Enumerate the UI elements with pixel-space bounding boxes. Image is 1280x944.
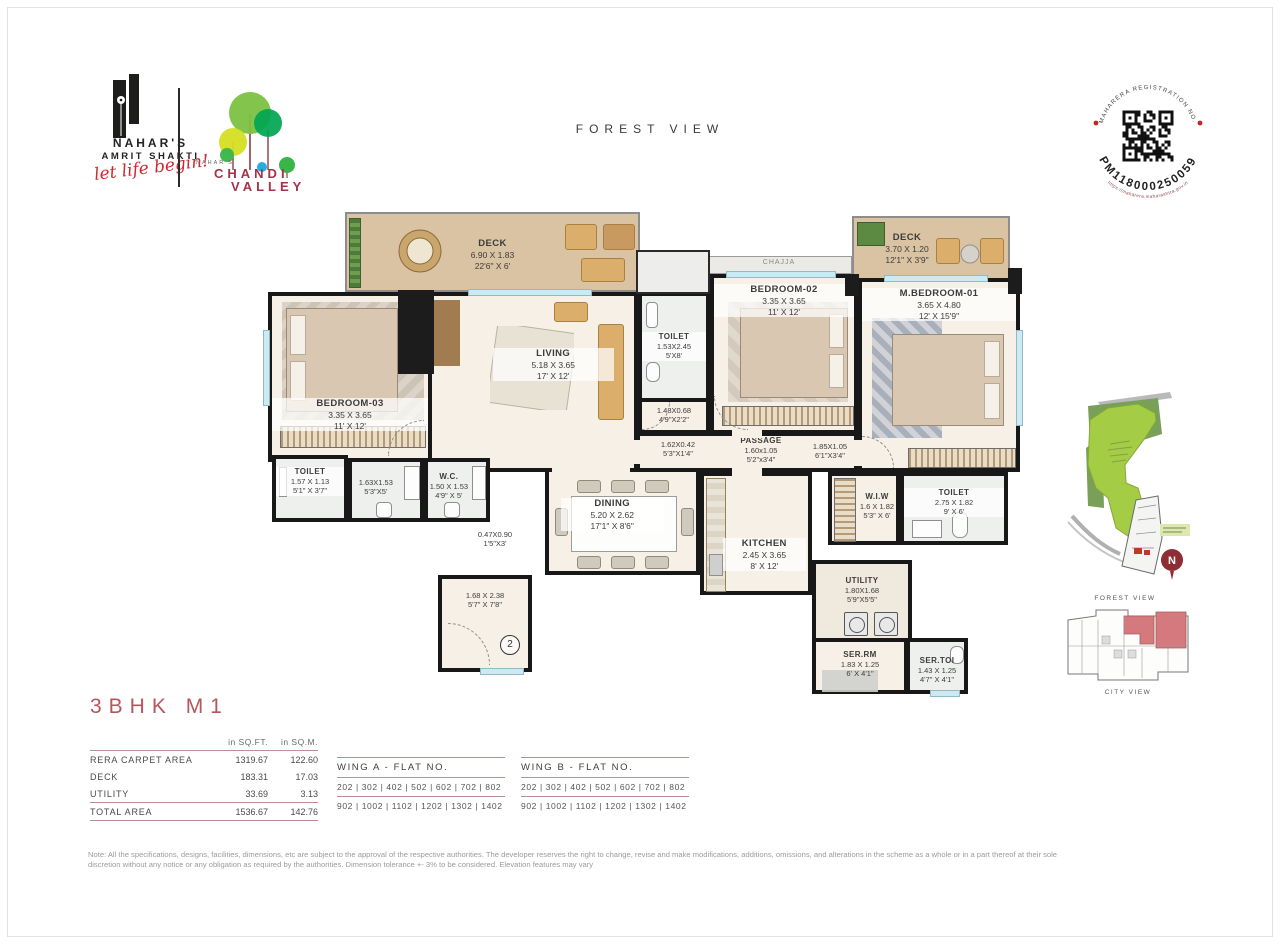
deck-sofa-icon (581, 258, 625, 282)
keyplan-caption-bottom: CITY VIEW (1105, 689, 1152, 696)
site-map: N FOREST VIEW (1058, 388, 1198, 606)
area-table: in SQ.FT. in SQ.M. RERA CARPET AREA 1319… (90, 733, 318, 821)
shower-icon (472, 466, 486, 500)
shower-icon (404, 466, 420, 500)
wall-opening (634, 440, 642, 464)
window (1016, 330, 1023, 426)
table-total-row: TOTAL AREA 1536.67 142.76 (90, 803, 318, 820)
wing-b-title: WING B - FLAT NO. (521, 758, 689, 777)
room-toilet-master: TOILET 2.75 X 1.82 9' X 6' (900, 472, 1008, 545)
room-label: 1.68 X 2.38 5'7" X 7'8" (442, 591, 528, 610)
brochure-page: { "brand": { "name_line1": "NAHAR'S", "n… (0, 0, 1280, 944)
deck-table-icon (603, 224, 635, 250)
area-table-header: in SQ.FT. in SQ.M. (90, 733, 318, 750)
rera-label: MAHARERA REGISTRATION NO. (1099, 85, 1197, 124)
window (468, 289, 592, 296)
highlighted-unit (1156, 612, 1186, 648)
col-sqm: in SQ.M. (268, 737, 318, 747)
room-bath: 1.63X1.53 5'3"X5' (348, 458, 424, 522)
room-wc: W.C. 1.50 X 1.53 4'9" X 5' (424, 458, 490, 522)
wing-a-flats-1: 202 | 302 | 402 | 502 | 602 | 702 | 802 (337, 778, 505, 796)
wc-icon (444, 502, 460, 518)
shower-icon (279, 467, 287, 497)
forest-view-title: FOREST VIEW (540, 122, 760, 136)
room-label: PASSAGE 1.60x1.05 5'2"x3'4" (718, 436, 804, 465)
bed-icon (740, 308, 848, 398)
window (480, 668, 524, 675)
disclaimer-line-2: discretion without any notice or any obl… (88, 860, 593, 869)
wc-icon (950, 646, 964, 664)
room-toilet-middle: TOILET 1.53X2.45 5'X8' (638, 292, 710, 402)
room-label: W.I.W 1.6 X 1.82 5'3" X 6' (854, 492, 900, 521)
maharera-qr-stamp: MAHARERA REGISTRATION NO. PM118000250059… (1078, 66, 1218, 206)
room-label: TOILET 1.53X2.45 5'X8' (642, 332, 706, 361)
room-service-room: SER.RM 1.83 X 1.25 6' X 4'1" (812, 638, 908, 694)
wing-b-flats-1: 202 | 302 | 402 | 502 | 602 | 702 | 802 (521, 778, 689, 796)
road (1072, 516, 1120, 554)
wing-a-title: WING A - FLAT NO. (337, 758, 505, 777)
armchair-icon (554, 302, 588, 322)
room-label: M.BEDROOM-01 3.65 X 4.80 12' X 15'9" (862, 288, 1016, 321)
wing-a-block: WING A - FLAT NO. 202 | 302 | 402 | 502 … (337, 757, 505, 815)
bed-icon (286, 308, 398, 412)
wardrobe-icon (834, 478, 856, 542)
living-rug-icon (490, 326, 574, 410)
table-row: DECK 183.31 17.03 (90, 768, 318, 785)
room-entrance-foyer: 1.68 X 2.38 5'7" X 7'8" 2 (438, 575, 532, 672)
unit-title: 3BHK M1 (90, 695, 229, 719)
qr-code-icon (1123, 111, 1174, 162)
svg-text:MAHARERA REGISTRATION NO.: MAHARERA REGISTRATION NO. (1099, 85, 1197, 124)
deck-table-icon (960, 244, 980, 264)
deck-sofa-icon (565, 224, 597, 250)
room-deck-1: DECK 6.90 X 1.83 22'6" X 6' (345, 212, 640, 292)
window (726, 271, 836, 278)
sink-icon (709, 554, 723, 576)
niche-label: 0.47X0.90 1'5"X3' (455, 530, 535, 549)
niche-label: 1.85X1.05 6'1"X3'4" (798, 442, 862, 461)
wc-icon (952, 512, 968, 538)
washer-icon (874, 612, 898, 636)
col-sqft: in SQ.FT. (212, 737, 268, 747)
room-kitchen: KITCHEN 2.45 X 3.65 8' X 12' (700, 472, 812, 595)
sitemap-caption-top: FOREST VIEW (1094, 595, 1155, 602)
room-wiw: W.I.W 1.6 X 1.82 5'3" X 6' (828, 472, 900, 545)
room-dining: DINING 5.20 X 2.62 17'1" X 8'6" (545, 468, 700, 575)
column (1008, 268, 1022, 294)
shaft (636, 250, 710, 294)
window (263, 330, 270, 406)
room-utility: UTILITY 1.80X1.68 5'9"X5'5" (812, 560, 912, 642)
deck-chair-icon (980, 238, 1004, 264)
washer-icon (844, 612, 868, 636)
disclaimer-line-1: Note: All the specifications, designs, f… (88, 850, 1057, 859)
wing-b-block: WING B - FLAT NO. 202 | 302 | 402 | 502 … (521, 757, 689, 815)
wall-opening (552, 466, 630, 476)
room-label: KITCHEN 2.45 X 3.65 8' X 12' (723, 538, 806, 571)
room-label: UTILITY 1.80X1.68 5'9"X5'5" (816, 576, 908, 605)
highlight-building (1134, 548, 1142, 554)
service-bed-icon (822, 670, 878, 692)
table-row: RERA CARPET AREA 1319.67 122.60 (90, 751, 318, 768)
wardrobe-icon (908, 448, 1016, 468)
niche-label: 1.62X0.42 5'3"X1'4" (642, 440, 714, 459)
column (398, 290, 434, 374)
table-row: UTILITY 33.69 3.13 (90, 785, 318, 802)
sofa-icon (598, 324, 624, 420)
room-service-toilet: SER.TOI 1.43 X 1.25 4'7" X 4'1" (906, 638, 968, 694)
washbasin-icon (912, 520, 942, 538)
wood-panel (434, 300, 460, 366)
wing-b-flats-2: 902 | 1002 | 1102 | 1202 | 1302 | 1402 (521, 797, 689, 815)
room-label: 1.63X1.53 5'3"X5' (352, 478, 400, 497)
wc-icon (376, 502, 392, 518)
wc-icon (646, 362, 660, 382)
door-arc-icon (448, 623, 490, 665)
logo-divider (178, 88, 180, 187)
logo-bar-icon (129, 74, 139, 124)
bed-icon (892, 334, 1004, 426)
deck-chair-icon (936, 238, 960, 264)
wall-opening (732, 430, 762, 438)
wing-a-flats-2: 902 | 1002 | 1102 | 1202 | 1302 | 1402 (337, 797, 505, 815)
wall-opening (732, 468, 762, 476)
dining-table-icon (571, 496, 677, 552)
deck-chair-icon (397, 228, 443, 274)
room-label: W.C. 1.50 X 1.53 4'9" X 5' (428, 472, 470, 501)
column (845, 274, 859, 296)
highlight-building (1144, 550, 1150, 555)
chandi-name-2: VALLEY (231, 179, 305, 194)
planter-icon (857, 222, 885, 246)
window (884, 275, 988, 282)
disclaimer-note: Note: All the specifications, designs, f… (88, 850, 1192, 870)
flat-number-badge: 2 (500, 635, 520, 655)
key-plan: CITY VIEW (1058, 606, 1198, 698)
room-passage: 1.62X0.42 5'3"X1'4" PASSAGE 1.60x1.05 5'… (636, 432, 858, 472)
chajja-label: CHAJJA (707, 259, 851, 268)
window (930, 690, 960, 697)
map-label-box (1160, 524, 1190, 536)
wall-opening (854, 440, 862, 466)
washbasin-icon (646, 302, 658, 328)
planter-icon (349, 218, 361, 288)
flower-icon (113, 92, 129, 138)
room-toilet-left: TOILET 1.57 X 1.13 5'1" X 3'7" (272, 455, 348, 522)
compass-n: N (1168, 555, 1176, 567)
